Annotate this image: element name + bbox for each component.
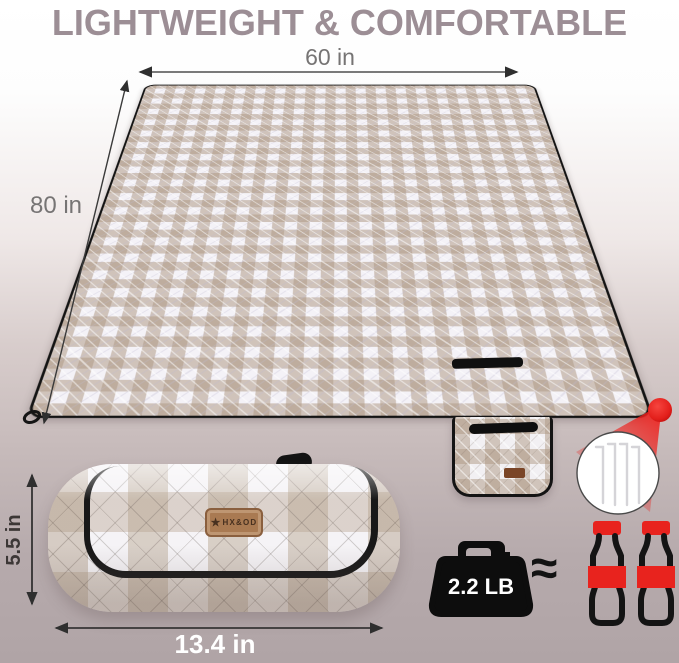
- weight-value: 2.2 LB: [432, 574, 530, 600]
- carry-flap: [452, 417, 553, 497]
- roll-height-label: 5.5 in: [3, 500, 29, 580]
- approximately-equal-symbol: ≈: [531, 540, 557, 598]
- brand-label: ★ HX&OD: [205, 508, 263, 537]
- roll-shading: [48, 464, 400, 612]
- roll-width-label: 13.4 in: [140, 629, 290, 660]
- bottle-icon: [637, 521, 675, 623]
- ground-stakes-icon: [596, 444, 639, 505]
- product-infographic: LIGHTWEIGHT & COMFORTABLE ★ HX&OD: [0, 0, 679, 663]
- brand-name: HX&OD: [222, 518, 257, 527]
- rolled-blanket: ★ HX&OD: [48, 464, 400, 612]
- length-dimension-label: 80 in: [20, 192, 92, 220]
- flap-handle: [469, 422, 538, 434]
- bottle-icon: [588, 521, 626, 623]
- stakes-magnifier: [577, 432, 659, 514]
- picnic-blanket: [26, 85, 654, 418]
- star-icon: ★: [211, 516, 221, 529]
- zoom-beam: [576, 404, 662, 512]
- width-dimension-label: 60 in: [280, 44, 380, 71]
- flap-brand-chip: [504, 468, 525, 478]
